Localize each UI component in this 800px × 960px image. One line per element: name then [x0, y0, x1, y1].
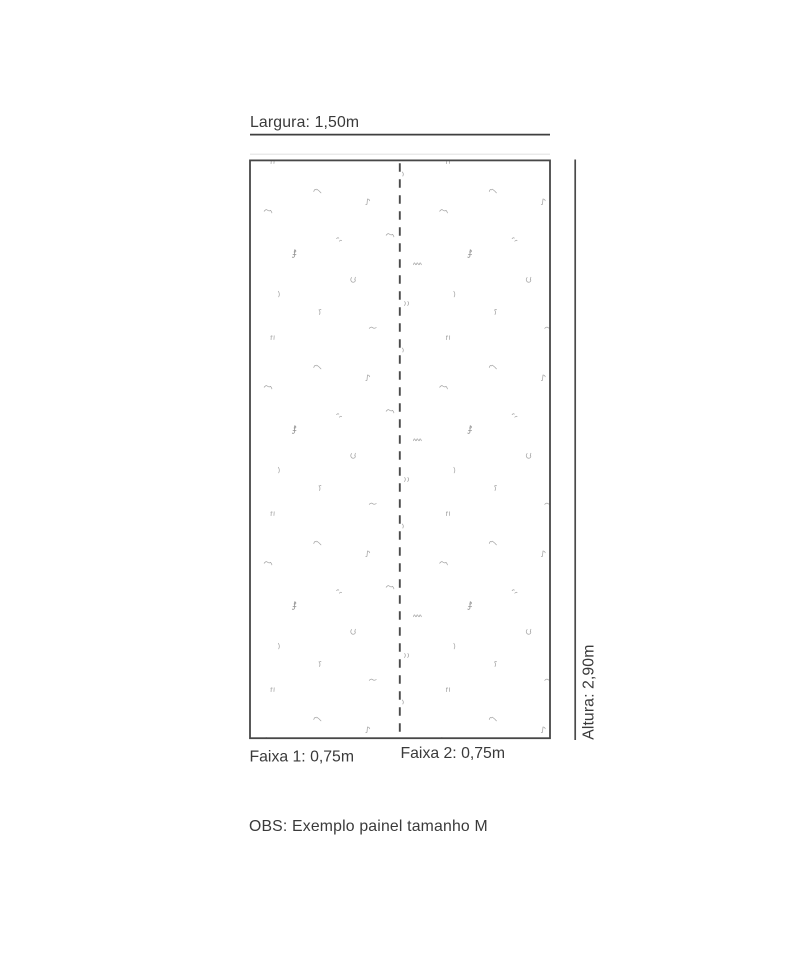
svg-text:OBS: Exemplo painel tamanho M: OBS: Exemplo painel tamanho M: [249, 818, 488, 835]
svg-text:Faixa 2: 0,75m: Faixa 2: 0,75m: [401, 745, 506, 762]
svg-text:Largura: 1,50m: Largura: 1,50m: [250, 114, 359, 131]
svg-text:Altura: 2,90m: Altura: 2,90m: [581, 645, 598, 740]
svg-text:Faixa 1: 0,75m: Faixa 1: 0,75m: [250, 749, 355, 766]
